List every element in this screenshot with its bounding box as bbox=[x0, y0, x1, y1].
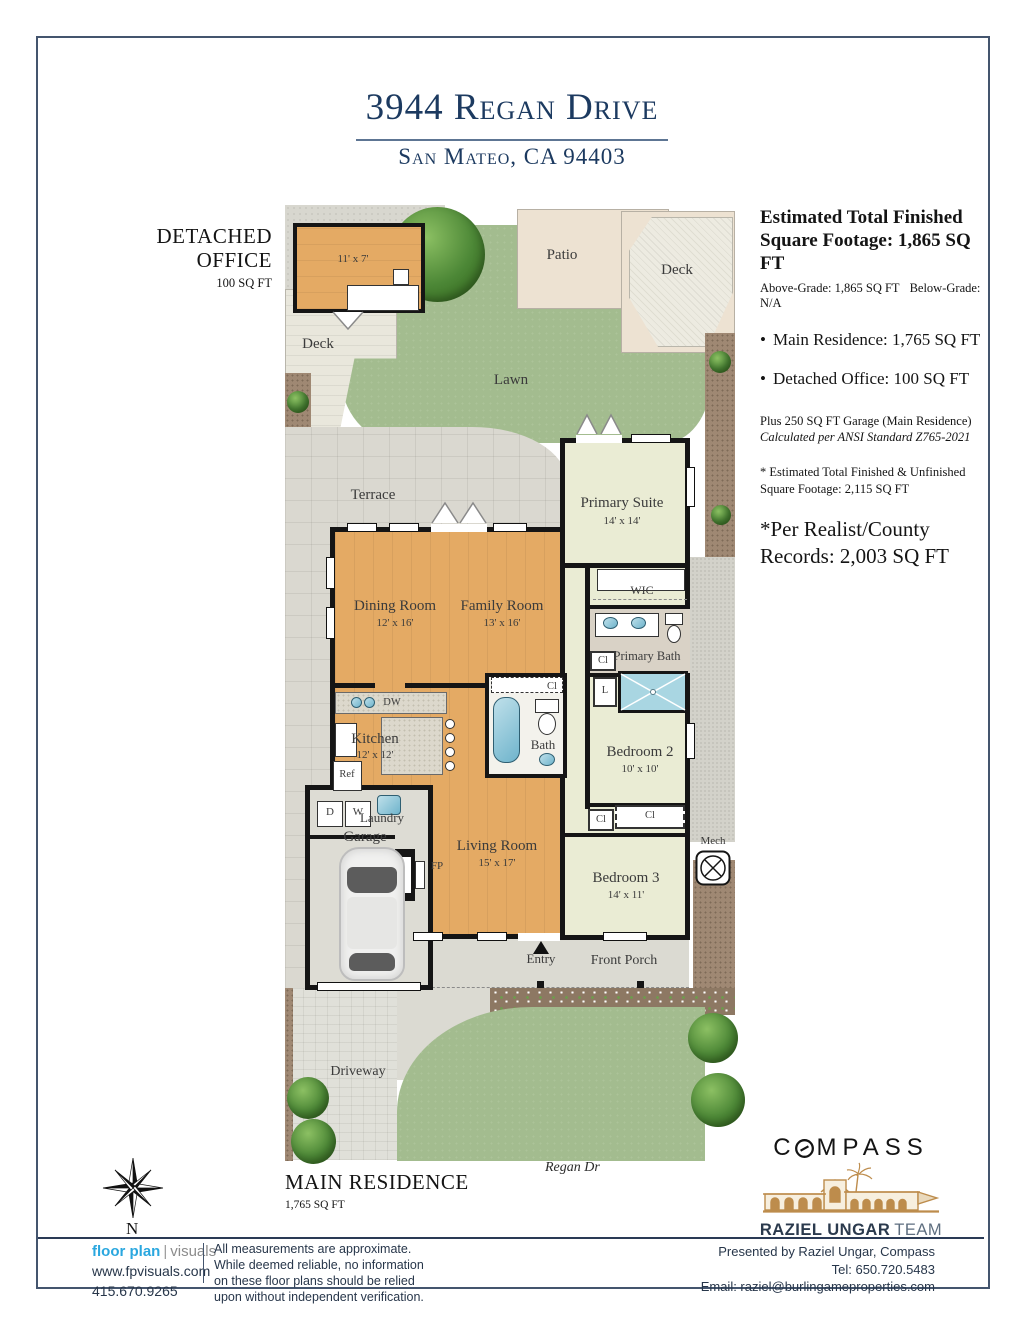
office-door-swing bbox=[331, 311, 365, 331]
cl-label: Cl bbox=[596, 814, 606, 825]
dryer-label: D bbox=[326, 806, 334, 818]
bush-left-2 bbox=[291, 1119, 336, 1164]
fpvisuals-logo-tag: visuals bbox=[170, 1243, 216, 1260]
wic-rod bbox=[593, 599, 687, 600]
french-door-swing bbox=[431, 501, 487, 524]
living-label: Living Room bbox=[457, 838, 537, 855]
window bbox=[477, 932, 507, 941]
footer-separator bbox=[38, 1237, 984, 1239]
office-desk bbox=[347, 285, 419, 311]
bush-left-1 bbox=[287, 1077, 329, 1119]
bush-right-1 bbox=[688, 1013, 738, 1063]
fpvisuals-phone: 415.670.9265 bbox=[92, 1283, 216, 1299]
footer-divider bbox=[203, 1243, 204, 1283]
laundry-label: Laundry bbox=[360, 810, 404, 826]
summary-heading-1: Estimated Total Finished bbox=[760, 206, 982, 229]
floor-plan: 11' x 7' Patio Deck Deck Lawn Terrace Pr… bbox=[285, 205, 735, 1165]
hearth bbox=[415, 861, 425, 889]
porch-post bbox=[537, 981, 544, 988]
window bbox=[603, 932, 647, 941]
toilet-tank bbox=[665, 613, 683, 625]
presenter-tel: Tel: 650.720.5483 bbox=[600, 1261, 935, 1279]
bath-label: Bath bbox=[531, 737, 556, 753]
car-roof bbox=[347, 897, 397, 949]
side-path-right bbox=[687, 557, 735, 842]
office-dim-label: 11' x 7' bbox=[337, 253, 368, 265]
fpvisuals-logo: floor plan|visuals bbox=[92, 1243, 216, 1260]
above-grade: Above-Grade: 1,865 SQ FT bbox=[760, 281, 900, 295]
compass-logo-rest: MPASS bbox=[817, 1134, 929, 1162]
garage-door bbox=[317, 982, 421, 991]
stool bbox=[445, 747, 455, 757]
dining-dim: 12' x 16' bbox=[377, 617, 414, 629]
disclaimer-line: upon without independent verification. bbox=[214, 1289, 424, 1305]
kitchen-dim: 12' x 12' bbox=[357, 749, 394, 761]
toilet-tank bbox=[535, 699, 559, 713]
deck-left-label: Deck bbox=[302, 336, 334, 353]
presented-by: Presented by Raziel Ungar, Compass bbox=[600, 1243, 935, 1261]
car-windshield bbox=[347, 867, 397, 893]
patio-label: Patio bbox=[547, 247, 578, 264]
county-records-1: *Per Realist/County bbox=[760, 516, 982, 543]
bedroom3-label: Bedroom 3 bbox=[592, 870, 659, 887]
detached-office-line2: OFFICE bbox=[120, 248, 272, 272]
kitchen-label: Kitchen bbox=[351, 731, 398, 748]
shower bbox=[618, 671, 688, 713]
presenter-email: Email: raziel@burlingameproperties.com bbox=[600, 1278, 935, 1296]
title-underline bbox=[356, 139, 668, 141]
county-records-2: Records: 2,003 SQ FT bbox=[760, 543, 982, 570]
primary-suite-dim: 14' x 14' bbox=[604, 515, 641, 527]
window bbox=[631, 434, 671, 443]
fpvisuals-logo-name: floor plan bbox=[92, 1243, 160, 1260]
detached-office-caption: DETACHED OFFICE 100 SQ FT bbox=[120, 224, 272, 291]
detached-office-sqft: 100 SQ FT bbox=[120, 276, 272, 291]
wall bbox=[330, 683, 375, 688]
window bbox=[326, 557, 335, 589]
street-label: Regan Dr bbox=[545, 1160, 600, 1176]
wall bbox=[560, 563, 690, 568]
lawn-label: Lawn bbox=[494, 372, 528, 389]
plant-right-1 bbox=[709, 351, 731, 373]
bullet-main-residence: Main Residence: 1,765 SQ FT bbox=[760, 330, 982, 350]
entry-door-opening bbox=[518, 933, 560, 941]
compass-logo: C MPASS bbox=[756, 1134, 946, 1162]
bedroom3-dim: 14' x 11' bbox=[608, 889, 645, 901]
fpvisuals-url: www.fpvisuals.com bbox=[92, 1263, 216, 1279]
fp-label: FP bbox=[431, 860, 443, 872]
window bbox=[493, 523, 527, 532]
kitchen-sink-1 bbox=[351, 697, 362, 708]
cl-label: Cl bbox=[547, 681, 557, 692]
bathtub bbox=[493, 697, 520, 763]
compass-rose: N bbox=[98, 1156, 168, 1239]
summary-heading-2: Square Footage: 1,865 SQ FT bbox=[760, 229, 982, 275]
main-residence-sqft: 1,765 SQ FT bbox=[285, 1199, 469, 1211]
door-opening bbox=[576, 435, 622, 443]
bullet-detached-office: Detached Office: 100 SQ FT bbox=[760, 369, 982, 389]
primary-bath-label: Primary Bath bbox=[613, 649, 680, 664]
page-subtitle: San Mateo, CA 94403 bbox=[0, 144, 1024, 170]
bath-sink bbox=[539, 753, 555, 766]
disclaimer-line: While deemed reliable, no information bbox=[214, 1257, 424, 1273]
north-label: N bbox=[126, 1219, 168, 1239]
window bbox=[413, 932, 443, 941]
door-opening bbox=[431, 524, 487, 532]
plant-right-2 bbox=[711, 505, 731, 525]
fpvisuals-logo-divider: | bbox=[163, 1243, 167, 1260]
disclaimer: All measurements are approximate. While … bbox=[214, 1241, 424, 1305]
dining-label: Dining Room bbox=[354, 598, 436, 615]
compass-rose-icon bbox=[101, 1156, 165, 1220]
living-dim: 15' x 17' bbox=[479, 857, 516, 869]
bedroom2-label: Bedroom 2 bbox=[606, 744, 673, 761]
bush-right-2 bbox=[691, 1073, 745, 1127]
station-building-icon bbox=[761, 1162, 941, 1214]
detached-office-line1: DETACHED bbox=[120, 224, 272, 248]
main-residence-label: MAIN RESIDENCE bbox=[285, 1170, 469, 1195]
ansi-note: Calculated per ANSI Standard Z765-2021 bbox=[760, 429, 982, 446]
front-porch-label: Front Porch bbox=[591, 953, 658, 969]
deck-right-label: Deck bbox=[661, 262, 693, 279]
main-residence-caption: MAIN RESIDENCE 1,765 SQ FT bbox=[285, 1170, 469, 1211]
washer-label: W bbox=[353, 806, 363, 818]
bedroom2-dim: 10' x 10' bbox=[622, 763, 659, 775]
garage-label: Garage bbox=[343, 829, 386, 846]
primary-suite-label: Primary Suite bbox=[581, 495, 664, 512]
window bbox=[686, 723, 695, 759]
mech-label: Mech bbox=[700, 835, 725, 847]
office-fixture bbox=[393, 269, 409, 285]
presenter-block: Presented by Raziel Ungar, Compass Tel: … bbox=[600, 1243, 935, 1296]
wall bbox=[565, 833, 690, 837]
fpvisuals-block: floor plan|visuals www.fpvisuals.com 415… bbox=[92, 1243, 216, 1299]
wic-label: WIC bbox=[630, 583, 653, 598]
cl-label: Cl bbox=[645, 810, 655, 821]
garage-note: Plus 250 SQ FT Garage (Main Residence) bbox=[760, 413, 982, 430]
vanity-sink-1 bbox=[603, 617, 618, 629]
stool bbox=[445, 761, 455, 771]
window bbox=[686, 467, 695, 507]
window bbox=[347, 523, 377, 532]
entry-label: Entry bbox=[527, 951, 556, 967]
wall bbox=[585, 563, 590, 809]
kitchen-sink-2 bbox=[364, 697, 375, 708]
toilet-bowl bbox=[538, 713, 556, 735]
stool bbox=[445, 733, 455, 743]
compass-o-icon bbox=[794, 1138, 815, 1159]
wall bbox=[405, 683, 493, 688]
disclaimer-line: on these floor plans should be relied bbox=[214, 1273, 424, 1289]
family-label: Family Room bbox=[461, 598, 544, 615]
dw-label: DW bbox=[383, 697, 401, 708]
stool bbox=[445, 719, 455, 729]
unfinished-note-2: Square Footage: 2,115 SQ FT bbox=[760, 481, 982, 498]
page-title: 3944 Regan Drive bbox=[0, 86, 1024, 129]
window bbox=[389, 523, 419, 532]
vanity-sink-2 bbox=[631, 617, 646, 629]
driveway-label: Driveway bbox=[330, 1064, 385, 1080]
porch-post bbox=[637, 981, 644, 988]
mech-unit bbox=[695, 850, 731, 886]
french-door-swing bbox=[576, 413, 622, 435]
branding-block: C MPASS RAZIEL UNGARTEAM bbox=[756, 1134, 946, 1240]
car-rear-window bbox=[349, 953, 395, 971]
plant-left bbox=[287, 391, 309, 413]
terrace-label: Terrace bbox=[351, 487, 396, 504]
toilet-bowl bbox=[667, 625, 681, 643]
linen-label: L bbox=[602, 685, 608, 696]
sqft-summary-panel: Estimated Total Finished Square Footage:… bbox=[760, 206, 982, 570]
window bbox=[326, 607, 335, 639]
unfinished-note-1: * Estimated Total Finished & Unfinished bbox=[760, 464, 982, 481]
ref-label: Ref bbox=[339, 769, 354, 780]
cl-label: Cl bbox=[598, 655, 608, 666]
family-dim: 13' x 16' bbox=[484, 617, 521, 629]
disclaimer-line: All measurements are approximate. bbox=[214, 1241, 424, 1257]
